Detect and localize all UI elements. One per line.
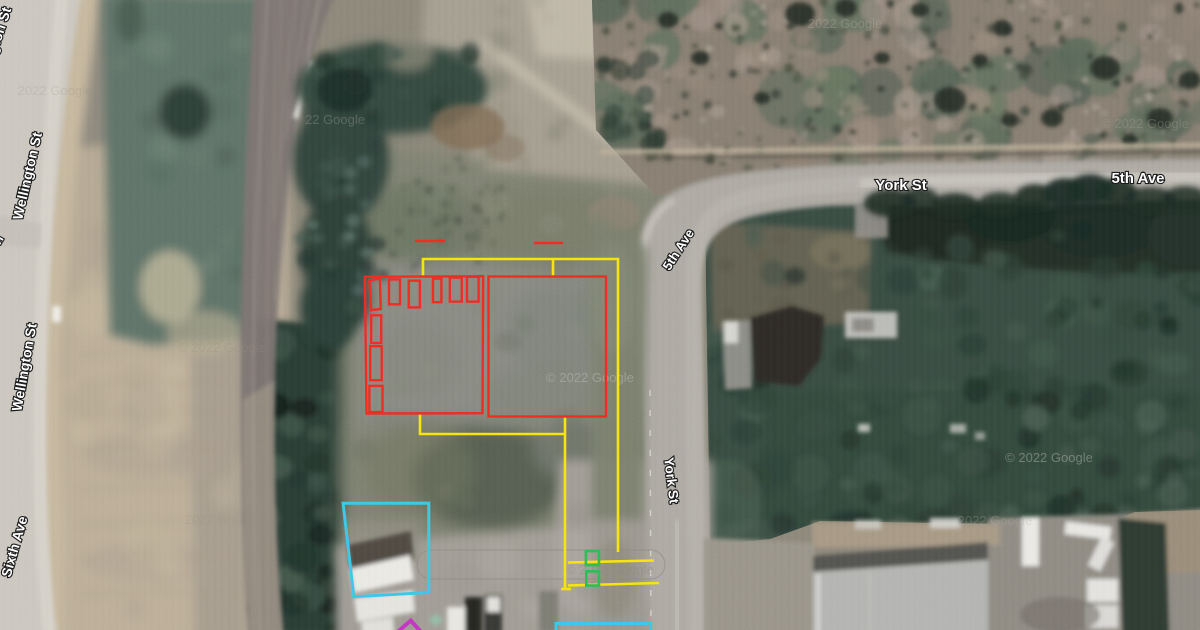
svg-text:© 2022 Google: © 2022 Google <box>546 370 634 385</box>
svg-text:York St: York St <box>875 177 926 194</box>
svg-text:2022 Google: 2022 Google <box>18 83 92 98</box>
svg-text:© 2022 Google: © 2022 Google <box>1005 450 1093 465</box>
svg-text:5th Ave: 5th Ave <box>1111 170 1164 187</box>
svg-text:2022 Google: 2022 Google <box>958 513 1032 528</box>
svg-text:© 2022 Google: © 2022 Google <box>566 562 654 577</box>
svg-text:22 Google: 22 Google <box>305 112 365 127</box>
svg-text:© 2022 Google: © 2022 Google <box>178 340 266 355</box>
svg-text:2022 Google: 2022 Google <box>808 16 882 31</box>
svg-text:2022 Google: 2022 Google <box>185 512 259 527</box>
svg-text:© 2022 Google: © 2022 Google <box>1101 116 1189 131</box>
